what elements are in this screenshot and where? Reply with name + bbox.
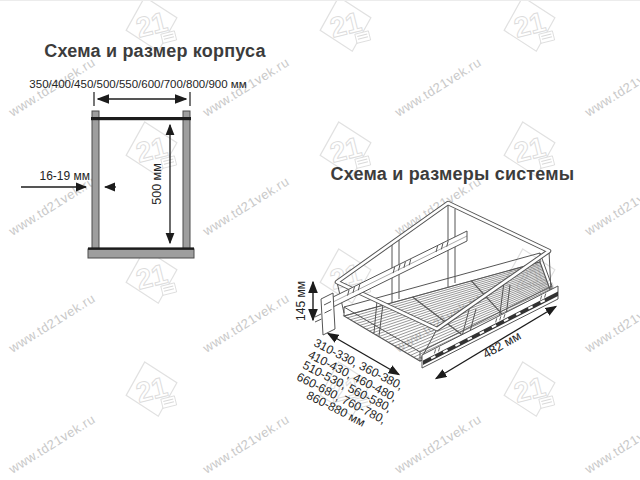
watermark-url-text: www.td21vek.ru: [392, 54, 484, 119]
watermark-url-text: www.td21vek.ru: [582, 54, 640, 119]
cabinet-thickness-label: 16-19 мм: [25, 169, 90, 183]
watermark-logo: 21: [311, 0, 381, 64]
cabinet-right-panel: [183, 111, 190, 250]
page: www.td21vek.ruwww.td21vek.ruwww.td21vek.…: [0, 0, 640, 480]
cabinet-left-panel: [92, 111, 99, 250]
watermark-url-text: www.td21vek.ru: [582, 173, 640, 238]
watermark-url-text: www.td21vek.ru: [200, 411, 292, 476]
cabinet-top-line: [91, 117, 191, 120]
watermark-url-text: www.td21vek.ru: [6, 290, 98, 355]
cabinet-diagram-title: Схема и размер корпуса: [30, 41, 280, 62]
cabinet-bottom-panel: [88, 249, 194, 258]
cabinet-height-label: 500 мм: [150, 163, 164, 205]
watermark-logo: 21: [495, 0, 565, 64]
watermark-url-text: www.td21vek.ru: [582, 411, 640, 476]
watermark-url-text: www.td21vek.ru: [392, 411, 484, 476]
slide-front-bracket: [315, 293, 335, 335]
watermark-url-text: www.td21vek.ru: [6, 411, 98, 476]
watermark-url-text: www.td21vek.ru: [582, 290, 640, 355]
watermark-url-text: www.td21vek.ru: [200, 290, 292, 355]
system-diagram-title: Схема и размеры системы: [325, 164, 580, 185]
watermark-logo: 21: [117, 353, 187, 429]
